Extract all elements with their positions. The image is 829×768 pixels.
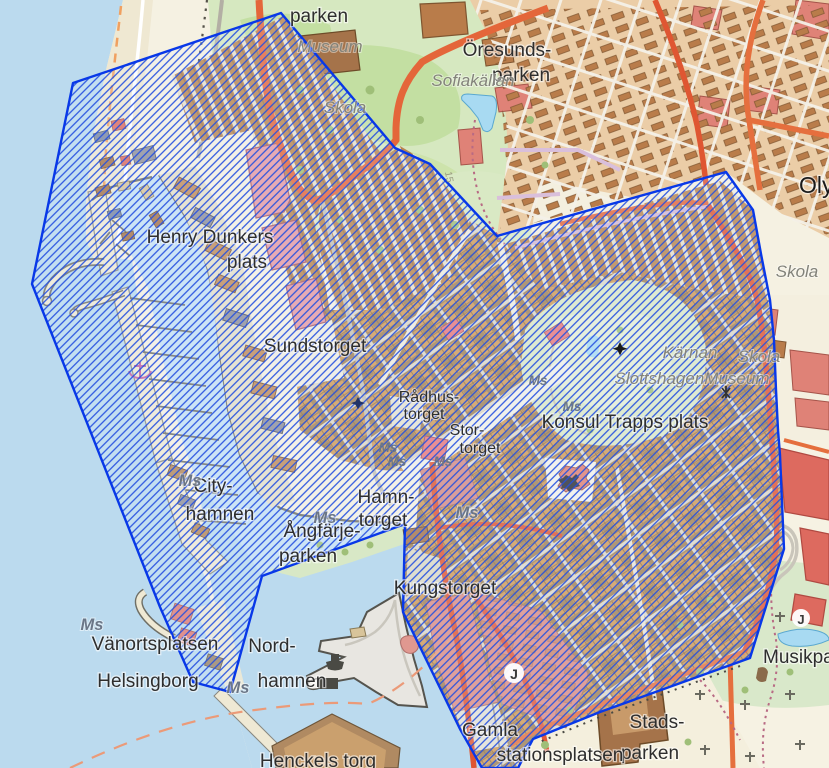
svg-text:J: J [510,666,518,682]
svg-text:Ms: Ms [456,504,479,522]
svg-text:Sundstorget: Sundstorget [264,336,367,357]
svg-text:SlottshagenMuseum: SlottshagenMuseum [615,369,770,388]
svg-text:Skola: Skola [776,262,819,281]
svg-text:stationsplatsen: stationsplatsen [497,745,624,766]
svg-text:Skola: Skola [738,347,781,366]
svg-text:hamnen: hamnen [186,504,255,525]
svg-text:parken: parken [279,546,337,567]
svg-text:Henry Dunkers: Henry Dunkers [147,227,274,248]
svg-text:Ms: Ms [379,440,398,455]
svg-text:torget: torget [359,510,408,531]
svg-text:plats: plats [227,252,267,273]
svg-text:Ms: Ms [434,454,453,469]
svg-text:Konsul Trapps plats: Konsul Trapps plats [542,412,709,433]
svg-text:Ms: Ms [563,399,582,414]
svg-text:Ms: Ms [314,509,337,527]
svg-text:Nord-: Nord- [248,636,296,657]
svg-text:Ms: Ms [227,679,250,697]
svg-text:Hamn-: Hamn- [357,487,414,508]
svg-text:Ms: Ms [81,616,104,634]
svg-text:torget: torget [460,440,501,457]
svg-text:Stads-: Stads- [630,712,685,733]
svg-text:Kungstorget: Kungstorget [394,578,497,599]
svg-text:parken: parken [621,743,679,764]
svg-text:Vänortsplatsen: Vänortsplatsen [92,634,219,655]
svg-text:parken: parken [290,6,348,27]
svg-text:Musikparken: Musikparken [763,647,829,668]
svg-text:Öresunds-: Öresunds- [463,40,552,61]
svg-text:J: J [797,612,804,627]
svg-text:Skola: Skola [324,98,367,117]
svg-text:Ms: Ms [529,373,548,388]
svg-text:Ms: Ms [388,454,407,469]
svg-text:Kärnan: Kärnan [663,343,718,362]
svg-text:hamnen: hamnen [258,671,327,692]
svg-text:Sofiakällan: Sofiakällan [431,71,514,90]
svg-text:Henckels torg: Henckels torg [260,751,376,768]
svg-text:Rådhus-: Rådhus- [399,388,459,406]
svg-text:Museum: Museum [297,37,362,56]
svg-text:Helsingborg: Helsingborg [97,671,198,692]
svg-text:Oly: Oly [799,172,829,198]
svg-text:torget: torget [404,406,445,423]
svg-text:Gamla: Gamla [462,720,518,741]
svg-text:Stor-: Stor- [450,422,485,439]
svg-text:Ms: Ms [179,472,202,490]
